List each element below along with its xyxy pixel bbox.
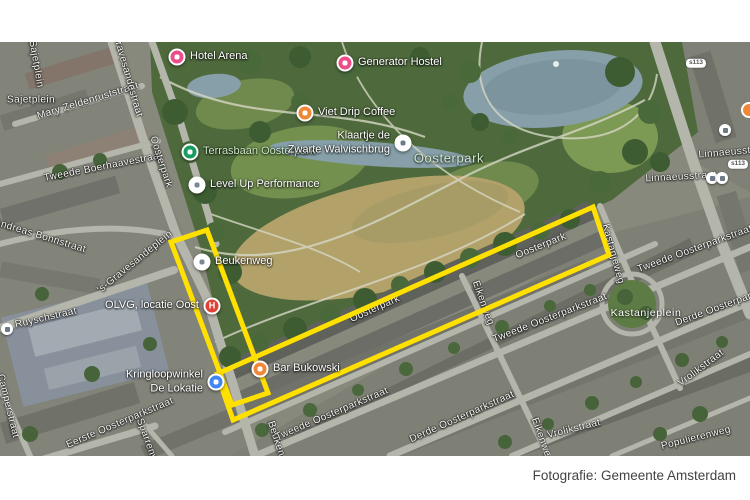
terrasbaan-oosterpark-marker-icon <box>182 144 199 161</box>
level-up-performance-marker-icon <box>189 177 206 194</box>
caption-bar: Fotografie: Gemeente Amsterdam <box>0 456 750 500</box>
generator-hostel-marker-icon <box>337 55 354 72</box>
kringloopwinkel-de-lokatie-marker-icon <box>208 374 225 391</box>
poi-label: Hotel Arena <box>190 50 247 64</box>
poi-label: Viet Drip Coffee <box>318 106 395 120</box>
photo-credit: Fotografie: Gemeente Amsterdam <box>533 468 736 483</box>
satellite-map-image: SajetpleinSajetpleinMary Zeldenruststraa… <box>0 42 750 456</box>
beukenweg-stop-marker-icon <box>194 254 211 271</box>
poi-label: OLVG, locatie Oost <box>105 299 199 313</box>
poi-label: Level Up Performance <box>210 178 319 192</box>
poi-label: Bar Bukowski <box>273 362 340 376</box>
poi-label: Generator Hostel <box>358 56 442 70</box>
poi-label: KringloopwinkelDe Lokatie <box>126 368 203 396</box>
poi-label: Beukenweg <box>215 255 273 269</box>
klaartje-de-zwarte-walvischbrug-marker-icon <box>395 135 412 152</box>
olvg-locatie-oost-marker-icon: H <box>204 298 221 315</box>
poi-label: Klaartje deZwarte Walvischbrug <box>288 129 390 157</box>
viet-drip-coffee-marker-icon <box>297 105 314 122</box>
bar-bukowski-marker-icon <box>252 361 269 378</box>
hotel-arena-marker-icon <box>169 49 186 66</box>
map-poi-layer: Hotel ArenaGenerator HostelViet Drip Cof… <box>0 42 750 456</box>
figure: SajetpleinSajetpleinMary Zeldenruststraa… <box>0 0 750 500</box>
